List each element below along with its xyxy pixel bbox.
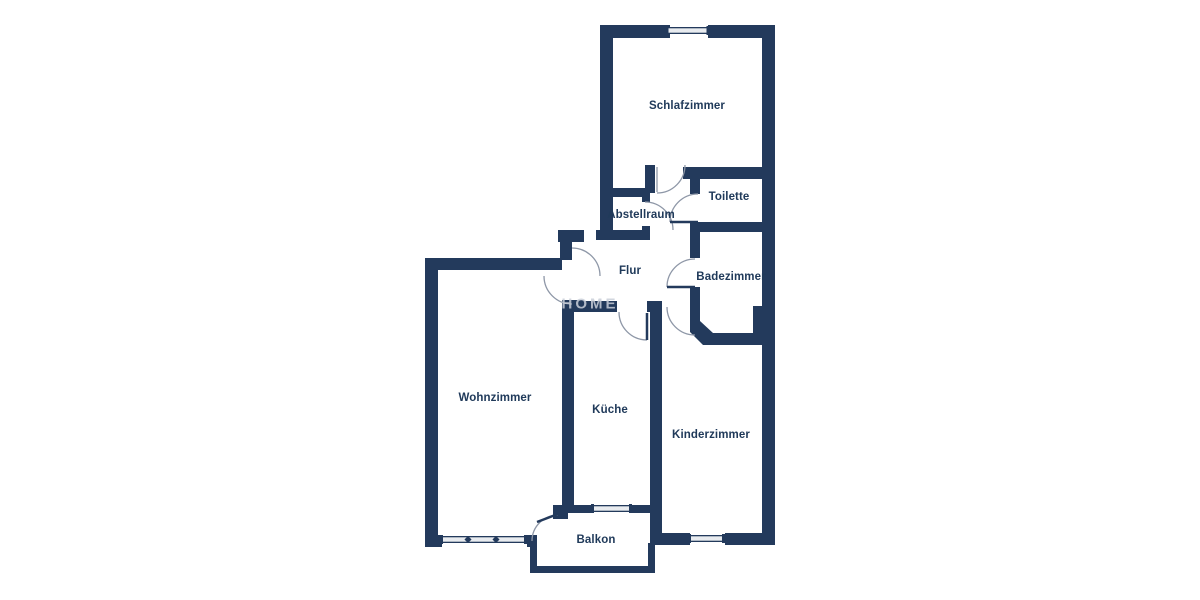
floor-plan-canvas: Schlafzimmer Toilette Abstellraum Flur B… — [0, 0, 1200, 600]
room-label-kueche: Küche — [592, 404, 628, 416]
window-wohnzimmer — [440, 535, 527, 544]
duct-shaft — [753, 306, 763, 336]
window-schlafzimmer — [666, 26, 710, 35]
door-entry — [572, 248, 600, 276]
door-schlafzimmer — [657, 165, 685, 193]
room-label-badezimmer: Badezimmer — [696, 271, 765, 283]
door-kueche — [619, 312, 647, 340]
room-label-balkon: Balkon — [577, 534, 616, 546]
watermark: HOME — [562, 296, 619, 313]
room-label-kinderzimmer: Kinderzimmer — [672, 429, 750, 441]
window-kinderzimmer — [688, 534, 725, 543]
room-label-wohnzimmer: Wohnzimmer — [459, 392, 532, 404]
door-badezimmer — [667, 259, 695, 287]
doors-layer — [532, 165, 698, 541]
room-label-schlafzimmer: Schlafzimmer — [649, 100, 725, 112]
room-label-toilette: Toilette — [709, 191, 750, 203]
window-kueche-balkon — [591, 504, 632, 513]
room-label-abstellraum: Abstellraum — [607, 209, 675, 221]
room-label-flur: Flur — [619, 265, 641, 277]
